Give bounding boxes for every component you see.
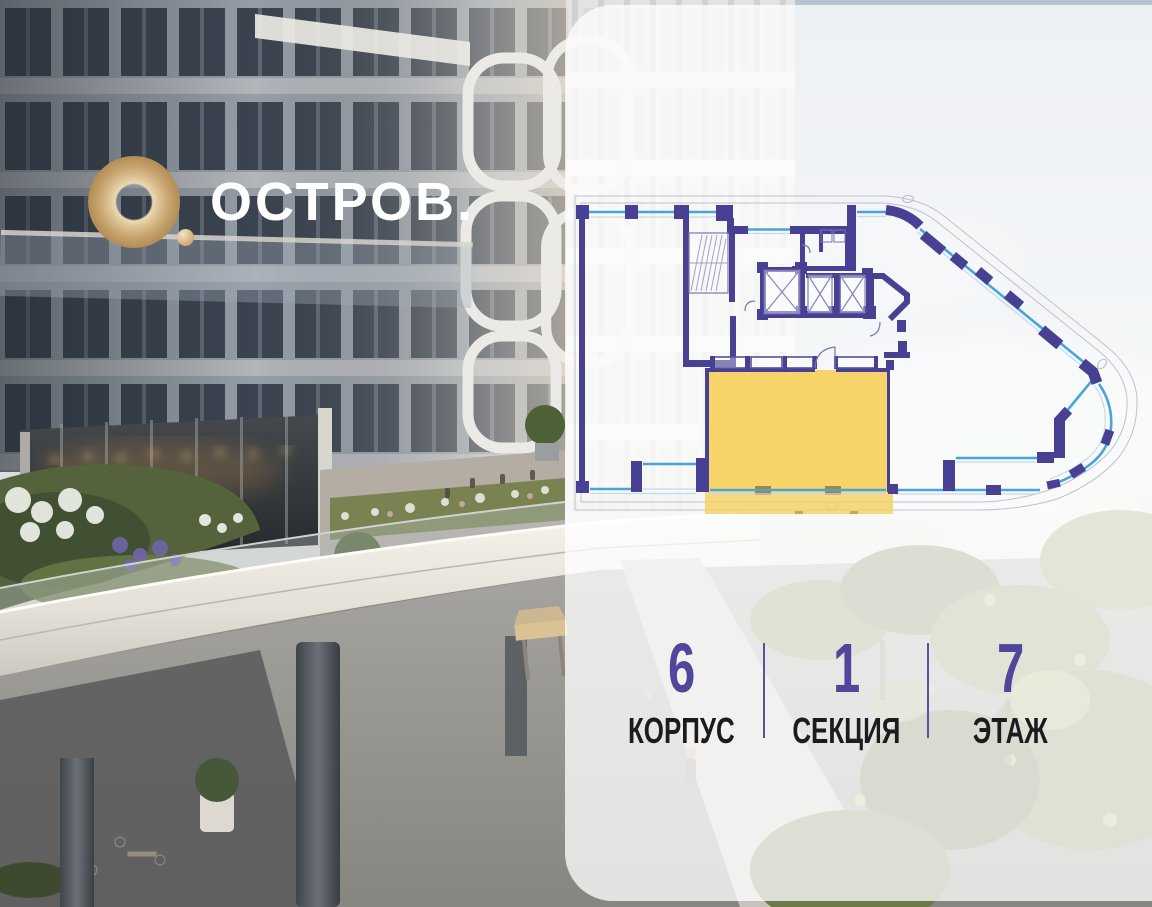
brand-name: ОСТРОВ. [210, 171, 475, 233]
selected-unit[interactable] [705, 370, 893, 514]
logo-o-icon [88, 156, 180, 248]
floorplan [565, 178, 1152, 524]
bridge-pillar [296, 642, 340, 907]
brand-logo[interactable]: ОСТРОВ. [88, 156, 475, 248]
unit-info-section: 1 СЕКЦИЯ [765, 638, 928, 749]
unit-info: 6 КОРПУС 1 СЕКЦИЯ 7 ЭТАЖ [600, 638, 1092, 749]
section-number: 1 [789, 638, 903, 700]
closet-row [713, 357, 876, 368]
screenshot-root: ОСТРОВ. [0, 0, 1152, 907]
building-number: 6 [624, 638, 738, 700]
logo-dot-icon [177, 229, 194, 246]
unit-info-building: 6 КОРПУС [600, 638, 763, 749]
unit-info-floor: 7 ЭТАЖ [929, 638, 1092, 749]
floor-number: 7 [954, 638, 1068, 700]
building-label: КОРПУС [623, 713, 740, 749]
floor-label: ЭТАЖ [952, 713, 1069, 749]
section-label: СЕКЦИЯ [787, 713, 904, 749]
